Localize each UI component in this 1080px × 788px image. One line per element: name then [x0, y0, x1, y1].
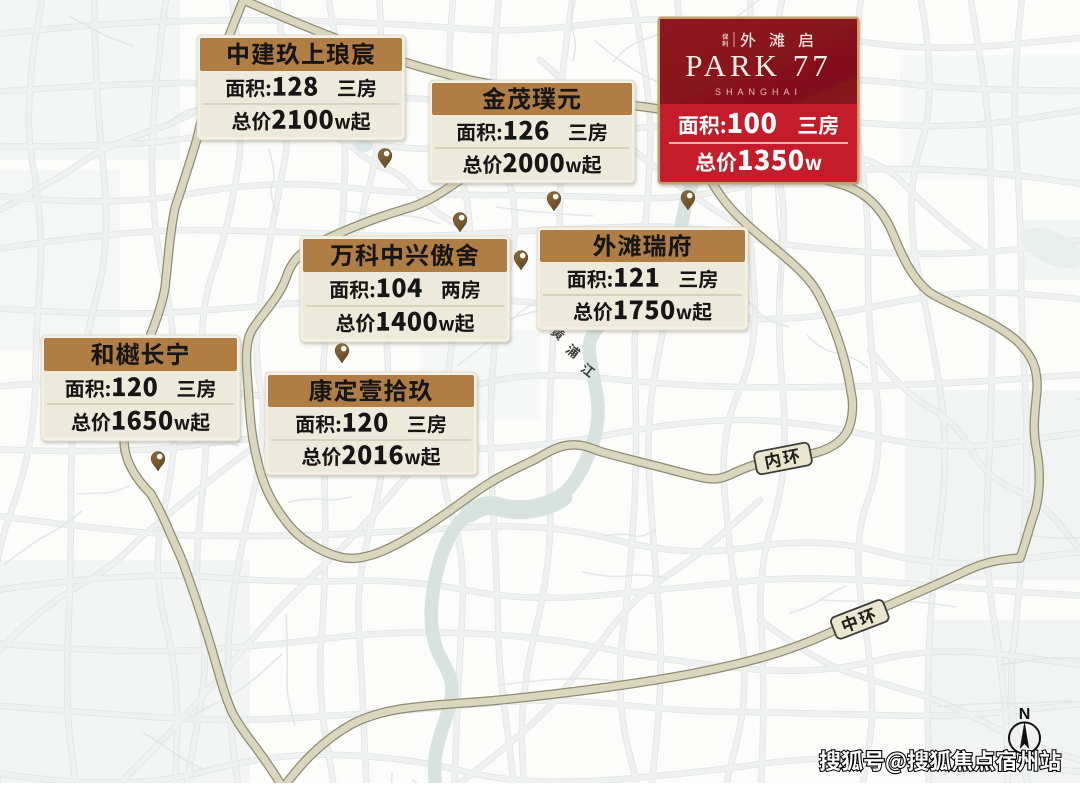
svg-text:PARK 77: PARK 77: [685, 48, 832, 83]
svg-text:N: N: [1019, 706, 1031, 723]
svg-text:SHANGHAI: SHANGHAI: [715, 87, 802, 97]
